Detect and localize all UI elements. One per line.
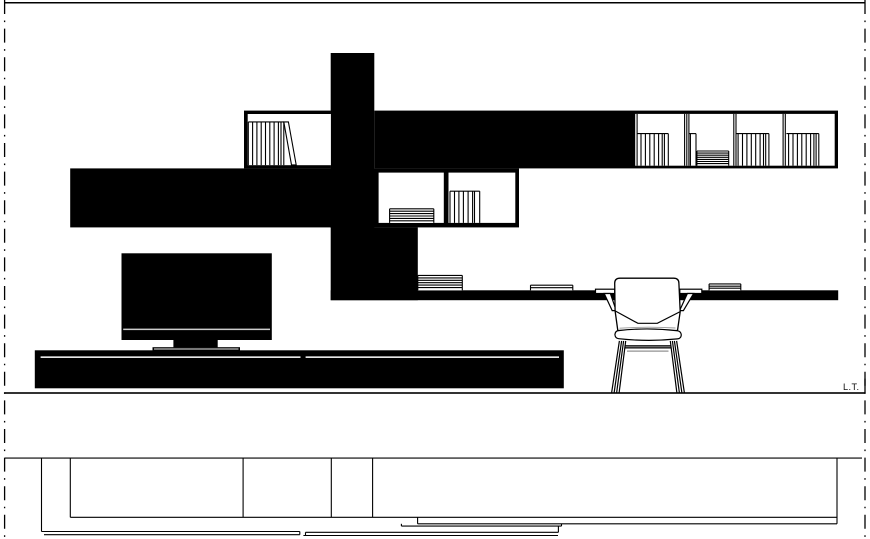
svg-text:L.T.: L.T. bbox=[843, 382, 859, 392]
